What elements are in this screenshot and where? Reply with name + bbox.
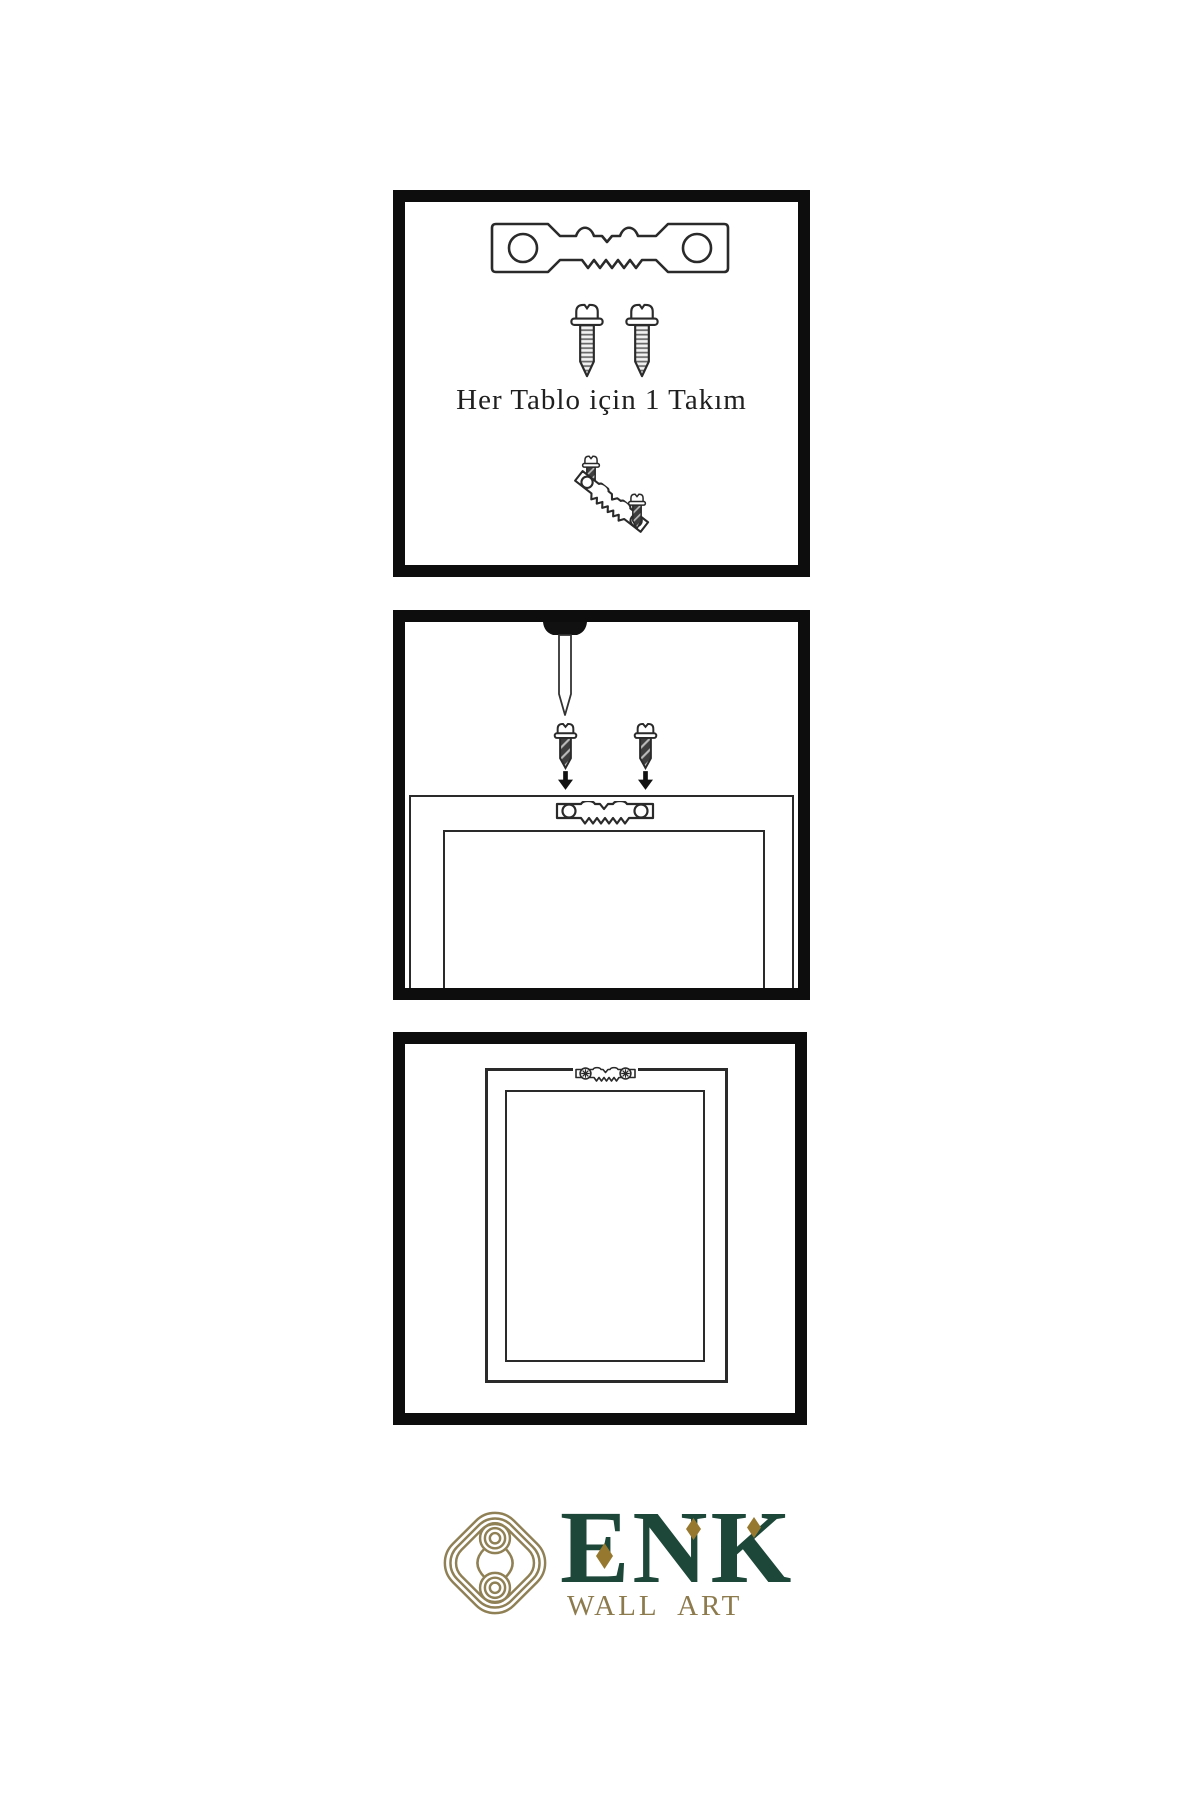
arrow-down-icon (558, 771, 573, 790)
wall-nail-icon (541, 622, 589, 722)
screw-icon (627, 492, 647, 530)
screw-icon (623, 301, 661, 381)
frame-front-inner (505, 1090, 705, 1362)
screw-icon (552, 721, 579, 770)
brand-name: ENK (560, 1496, 794, 1600)
sawtooth-hanger-icon (490, 220, 730, 276)
arrow-down-icon (638, 771, 653, 790)
panel-hanging (393, 1032, 807, 1425)
kit-caption: Her Tablo için 1 Takım (405, 384, 798, 417)
brand-subtitle: WALL ART (567, 1592, 742, 1621)
panel-mounting (393, 610, 810, 1000)
frame-back-inner (443, 830, 765, 988)
sawtooth-hanger-icon (553, 801, 657, 827)
screw-icon (632, 721, 659, 770)
screw-into-hanger-icon (565, 448, 695, 560)
mounted-hanger-icon (573, 1066, 638, 1084)
panel-hardware-kit: Her Tablo için 1 Takım (393, 190, 810, 577)
instruction-sheet: Her Tablo için 1 Takım (0, 0, 1200, 1800)
knot-icon (436, 1496, 554, 1630)
screw-icon (568, 301, 606, 381)
